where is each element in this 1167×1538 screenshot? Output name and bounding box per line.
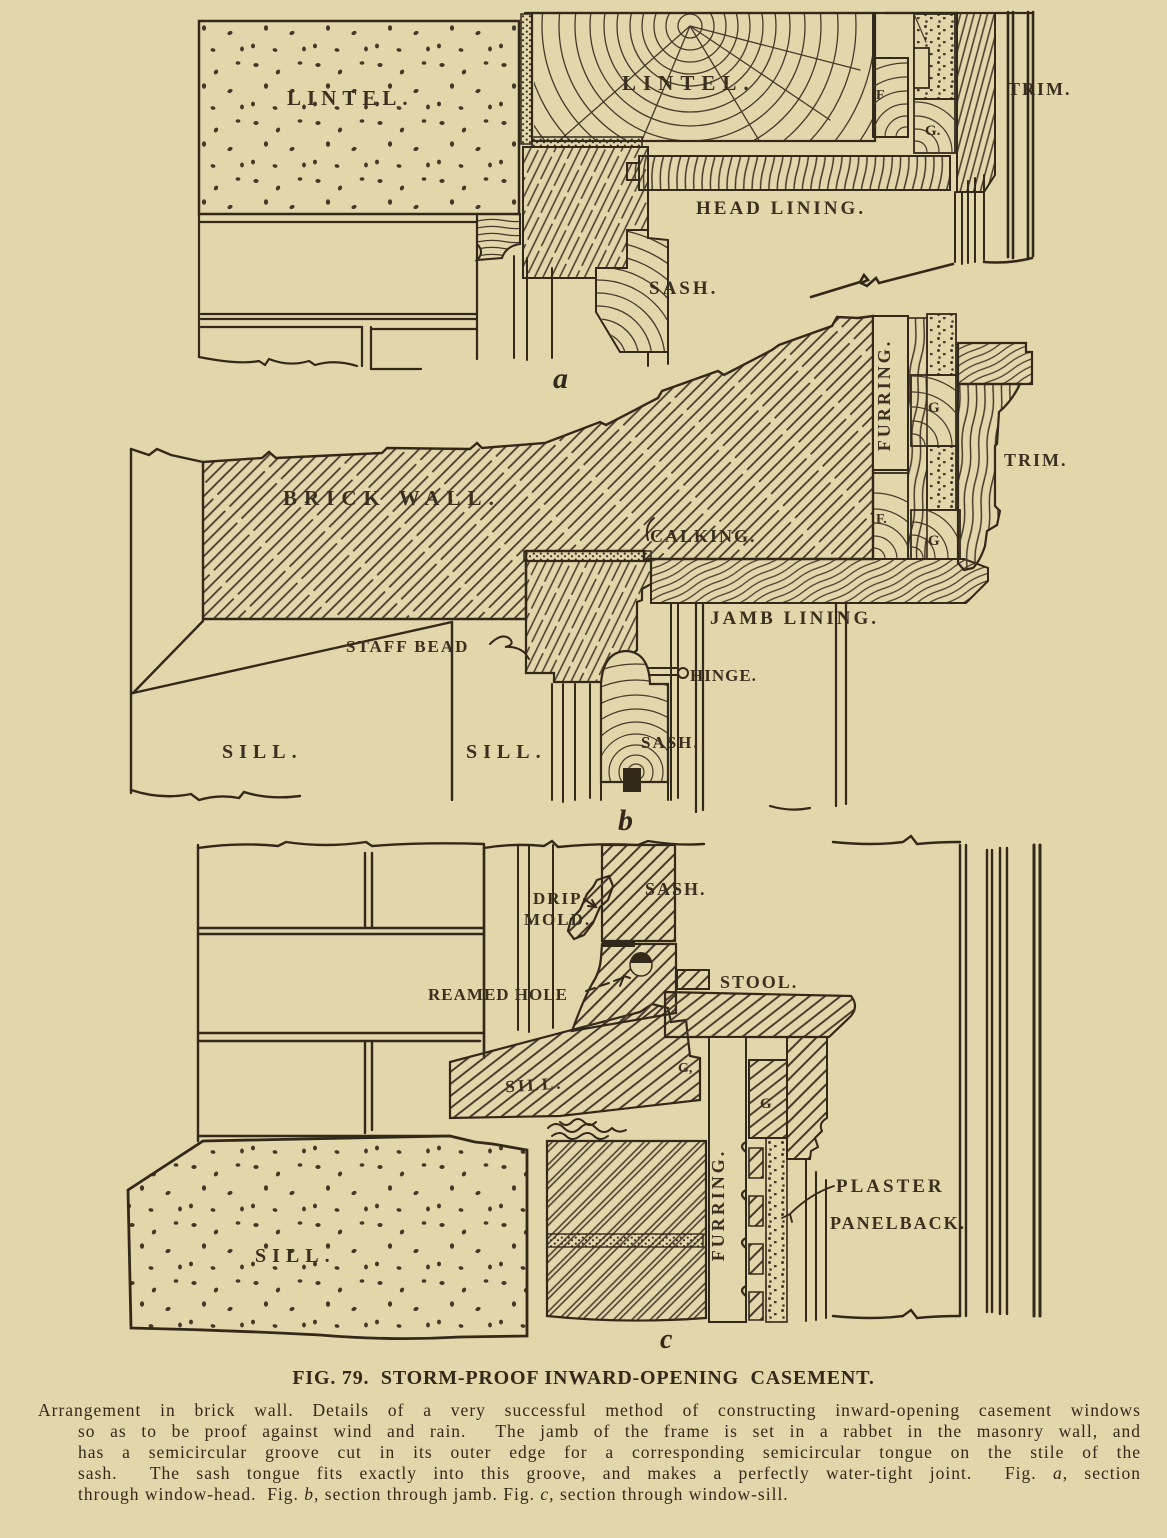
svg-text:G: G [760, 1096, 772, 1112]
svg-text:REAMED HOLE: REAMED HOLE [428, 985, 568, 1004]
svg-text:FURRING.: FURRING. [708, 1149, 728, 1262]
svg-text:F: F [876, 88, 885, 103]
svg-text:BRICK WALL.: BRICK WALL. [283, 486, 501, 510]
svg-text:PANELBACK.: PANELBACK. [830, 1213, 966, 1233]
svg-text:HEAD LINING.: HEAD LINING. [696, 198, 866, 219]
svg-text:F.: F. [876, 512, 887, 527]
svg-text:SASH.: SASH. [649, 278, 718, 299]
svg-text:LINTEL.: LINTEL. [622, 71, 756, 95]
svg-text:SILL.: SILL. [505, 1073, 564, 1096]
svg-text:c: c [660, 1324, 673, 1355]
svg-text:LINTEL.: LINTEL. [287, 86, 414, 110]
svg-text:HINGE.: HINGE. [690, 666, 757, 685]
svg-text:G,: G, [678, 1061, 692, 1076]
svg-text:SILL.: SILL. [222, 741, 303, 763]
svg-text:SASH.: SASH. [645, 879, 707, 899]
svg-text:PLASTER: PLASTER [836, 1176, 945, 1197]
svg-text:TRIM.: TRIM. [1004, 450, 1068, 470]
svg-text:STAFF BEAD: STAFF BEAD [346, 637, 469, 656]
svg-text:TRIM.: TRIM. [1008, 79, 1072, 99]
svg-text:FURRING.: FURRING. [874, 339, 894, 452]
svg-text:G.: G. [925, 123, 941, 139]
svg-text:JAMB LINING.: JAMB LINING. [710, 608, 879, 629]
svg-text:MOLD.: MOLD. [524, 910, 591, 929]
svg-text:G: G [928, 533, 940, 549]
svg-text:CALKING.: CALKING. [650, 526, 757, 546]
svg-text:SILL.: SILL. [255, 1245, 336, 1267]
svg-text:DRIP: DRIP [533, 889, 583, 908]
svg-text:SILL.: SILL. [466, 741, 547, 763]
svg-text:a: a [553, 362, 568, 395]
svg-text:STOOL.: STOOL. [720, 972, 798, 992]
svg-text:G: G [928, 400, 940, 416]
svg-text:b: b [618, 804, 633, 837]
